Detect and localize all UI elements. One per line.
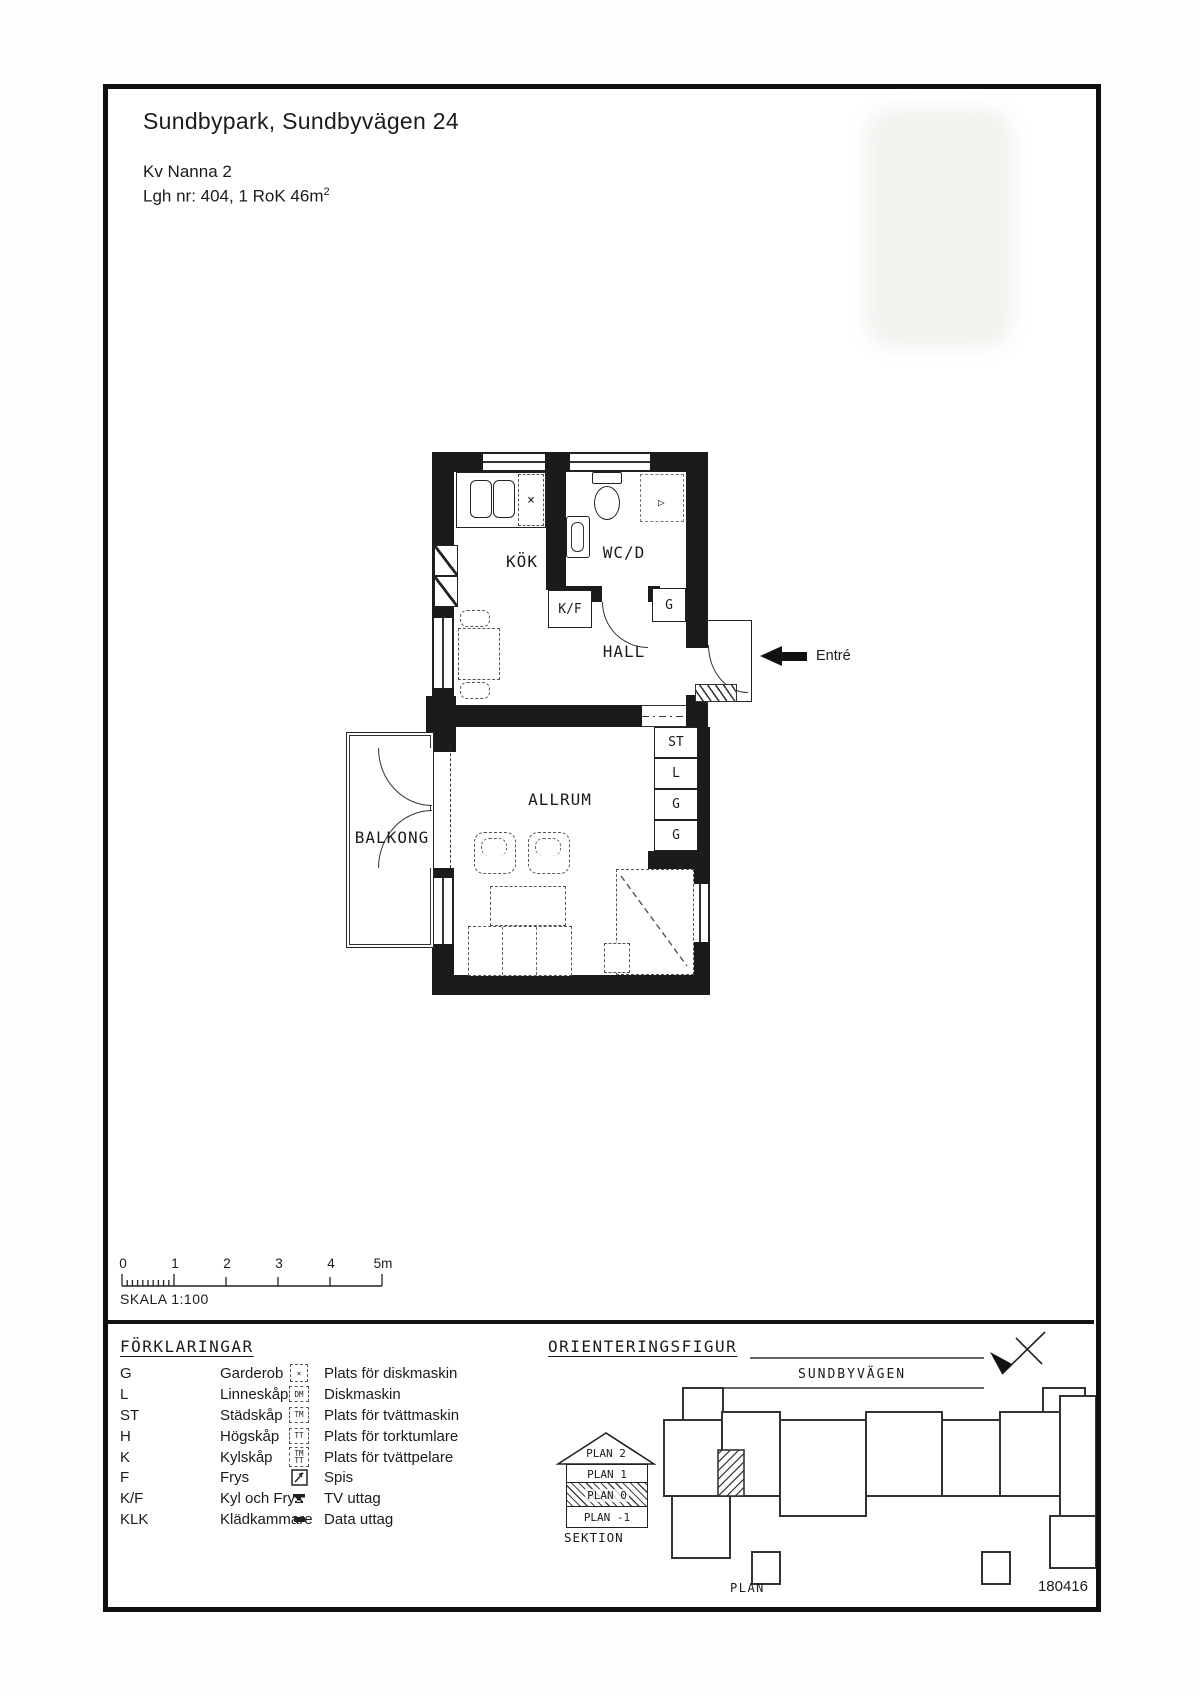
symbol-label: Plats för tvättpelare — [324, 1449, 453, 1466]
closet-g1: G — [654, 789, 698, 820]
legend-symbol-row: × Plats för diskmaskin — [284, 1363, 459, 1384]
section-level-plan0-highlighted: PLAN 0 — [566, 1482, 648, 1508]
abbr: K/F — [120, 1490, 220, 1507]
washbasin-bowl — [571, 522, 584, 552]
abbr: K — [120, 1449, 220, 1466]
sofa — [468, 926, 572, 976]
scanned-floorplan-page: Sundbypark, Sundbyvägen 24 Kv Nanna 2 Lg… — [0, 0, 1200, 1696]
legend-symbol-row: Spis — [284, 1467, 459, 1488]
armchair-1 — [474, 832, 516, 874]
room-label-balkong: BALKONG — [348, 828, 436, 847]
north-arrow-icon — [990, 1332, 1045, 1374]
legend-symbol-row: DM Diskmaskin — [284, 1384, 459, 1405]
closet-l-label: L — [672, 766, 680, 781]
symbol-label: Plats för diskmaskin — [324, 1365, 457, 1382]
abbr-label: Linneskåp — [220, 1386, 288, 1403]
symbol-label: Plats för torktumlare — [324, 1428, 458, 1445]
abbr-label: Högskåp — [220, 1428, 279, 1445]
sink-basin-right — [493, 480, 515, 518]
washer-tower-place-icon: TMTT — [289, 1447, 309, 1467]
tall-cabinet-lower — [434, 576, 458, 607]
abbr: G — [120, 1365, 220, 1382]
scale-tick-3: 3 — [266, 1256, 292, 1271]
wall-right-at-g — [686, 586, 708, 624]
section-level-plan-minus1: PLAN -1 — [566, 1506, 648, 1528]
abbr: F — [120, 1469, 220, 1486]
section-level-plan2: PLAN 2 — [574, 1447, 638, 1460]
closet-st-label: ST — [668, 735, 684, 750]
dining-window — [432, 618, 454, 688]
coffee-table — [490, 886, 566, 926]
floor-plan: G ST L G G × — [340, 440, 870, 1000]
scale-tick-0: 0 — [110, 1256, 136, 1271]
abbr-label: Garderob — [220, 1365, 283, 1382]
wall-top-b — [545, 452, 570, 472]
wall-bottom — [432, 975, 710, 995]
dining-chair-bottom — [460, 682, 490, 699]
icon-text-bottom: TT — [294, 1457, 303, 1465]
fridge-freezer-unit: K/F — [548, 590, 592, 628]
street-name: SUNDBYVÄGEN — [798, 1366, 906, 1382]
block-name: Kv Nanna 2 — [143, 162, 232, 182]
livingroom-window-left — [432, 878, 454, 944]
washer-place-icon: TM — [289, 1407, 309, 1423]
abbr: KLK — [120, 1511, 220, 1528]
dining-chair-top — [460, 610, 490, 627]
armchair-2 — [528, 832, 570, 874]
site-plan: SUNDBYVÄGEN — [650, 1326, 1096, 1602]
wall-kok-wcd-divider — [546, 472, 566, 590]
section-figure: PLAN 2 PLAN 1 PLAN 0 PLAN -1 SEKTION — [556, 1430, 656, 1556]
abbr: ST — [120, 1407, 220, 1424]
wcd-window — [570, 452, 650, 472]
stove-legend-icon — [291, 1469, 308, 1486]
apartment-info-text: Lgh nr: 404, 1 RoK 46m — [143, 187, 324, 206]
wall-top-a — [432, 452, 483, 472]
abbr-label: Frys — [220, 1469, 249, 1486]
closet-g-hall: G — [652, 588, 686, 622]
toilet-tank — [592, 472, 622, 484]
room-label-hall: HALL — [592, 642, 656, 661]
symbol-label: Diskmaskin — [324, 1386, 401, 1403]
entry-label: Entré — [816, 648, 851, 664]
scale-ruler — [121, 1274, 387, 1288]
site-plan-caption: PLAN — [730, 1581, 765, 1595]
washbasin — [566, 516, 590, 558]
square-meter-sup: 2 — [324, 186, 330, 198]
balcony-door-threshold — [450, 748, 451, 868]
sofa-cushion-line-2 — [536, 927, 537, 975]
room-label-wcd: WC/D — [592, 543, 656, 562]
closet-g1-label: G — [672, 797, 680, 812]
toilet-bowl — [594, 486, 620, 520]
wall-right-stub-above-entry — [686, 624, 708, 648]
section-divider-line — [108, 1320, 1094, 1324]
document-title: Sundbypark, Sundbyvägen 24 — [143, 108, 459, 135]
kf-label: K/F — [558, 602, 581, 617]
apartment-info: Lgh nr: 404, 1 RoK 46m2 — [143, 186, 330, 207]
plan-minus1-label: PLAN -1 — [584, 1511, 630, 1524]
entry-arrow-shaft — [781, 652, 807, 661]
legend-symbol-row: TV uttag — [284, 1488, 459, 1509]
closet-g2: G — [654, 820, 698, 851]
legend-symbol-row: TT Plats för torktumlare — [284, 1426, 459, 1447]
wall-right-upper — [686, 452, 708, 586]
wall-right-closets — [698, 727, 710, 851]
stove-symbol: × — [518, 474, 544, 526]
kitchen-window — [483, 452, 545, 472]
scale-tick-2: 2 — [214, 1256, 240, 1271]
sofa-cushion-line-1 — [502, 927, 503, 975]
armchair-1-back — [481, 838, 507, 856]
wcd-door-tick-icon: ▷ — [658, 496, 666, 509]
legend-symbol-row: Data uttag — [284, 1509, 459, 1530]
armchair-2-back — [535, 838, 561, 856]
abbr: L — [120, 1386, 220, 1403]
abbr: H — [120, 1428, 220, 1445]
section-caption: SEKTION — [564, 1530, 624, 1545]
legend-symbols: × Plats för diskmaskin DM Diskmaskin TM … — [284, 1363, 459, 1530]
stove-x-mark: × — [527, 493, 535, 508]
symbol-label: Data uttag — [324, 1511, 393, 1528]
dining-table — [458, 628, 500, 680]
plan0-label: PLAN 0 — [585, 1489, 629, 1502]
scale-tick-1: 1 — [162, 1256, 188, 1271]
tv-outlet-icon — [292, 1493, 306, 1504]
apartment-location-marker — [718, 1450, 744, 1496]
closet-st: ST — [654, 727, 698, 758]
room-label-kok: KÖK — [492, 552, 552, 571]
scale-tick-4: 4 — [318, 1256, 344, 1271]
symbol-label: Spis — [324, 1469, 353, 1486]
scale-tick-5: 5m — [370, 1256, 396, 1271]
revision-date: 180416 — [1012, 1578, 1088, 1595]
abbr-label: Städskåp — [220, 1407, 283, 1424]
wall-hall-allrum — [446, 705, 642, 727]
tall-cabinet-upper — [434, 545, 458, 576]
closet-g2-label: G — [672, 828, 680, 843]
room-label-allrum: ALLRUM — [512, 790, 608, 809]
wall-left-low-a — [432, 868, 454, 878]
dishwasher-icon: DM — [289, 1386, 309, 1402]
legend-title: FÖRKLARINGAR — [120, 1337, 254, 1356]
data-outlet-icon — [294, 1517, 305, 1522]
sink-basin-left — [470, 480, 492, 518]
dishwasher-place-icon: × — [290, 1364, 308, 1382]
section-level-plan1: PLAN 1 — [566, 1464, 648, 1484]
scan-shading-artifact — [865, 108, 1013, 348]
wall-opening-dashdot — [642, 705, 686, 727]
symbol-label: TV uttag — [324, 1490, 381, 1507]
bedside-placement — [604, 943, 630, 973]
closet-g-hall-label: G — [665, 598, 673, 613]
plan1-label: PLAN 1 — [587, 1468, 627, 1481]
legend-symbol-row: TMTT Plats för tvättpelare — [284, 1447, 459, 1468]
closet-l: L — [654, 758, 698, 789]
abbr-label: Kylskåp — [220, 1449, 273, 1466]
entry-arrow-icon — [760, 646, 782, 666]
scale-label: SKALA 1:100 — [120, 1291, 209, 1307]
wall-stub-below-closets — [648, 851, 710, 869]
symbol-label: Plats för tvättmaskin — [324, 1407, 459, 1424]
electrical-panel-symbol — [695, 684, 737, 702]
dryer-place-icon: TT — [289, 1428, 309, 1444]
legend-symbol-row: TM Plats för tvättmaskin — [284, 1405, 459, 1426]
